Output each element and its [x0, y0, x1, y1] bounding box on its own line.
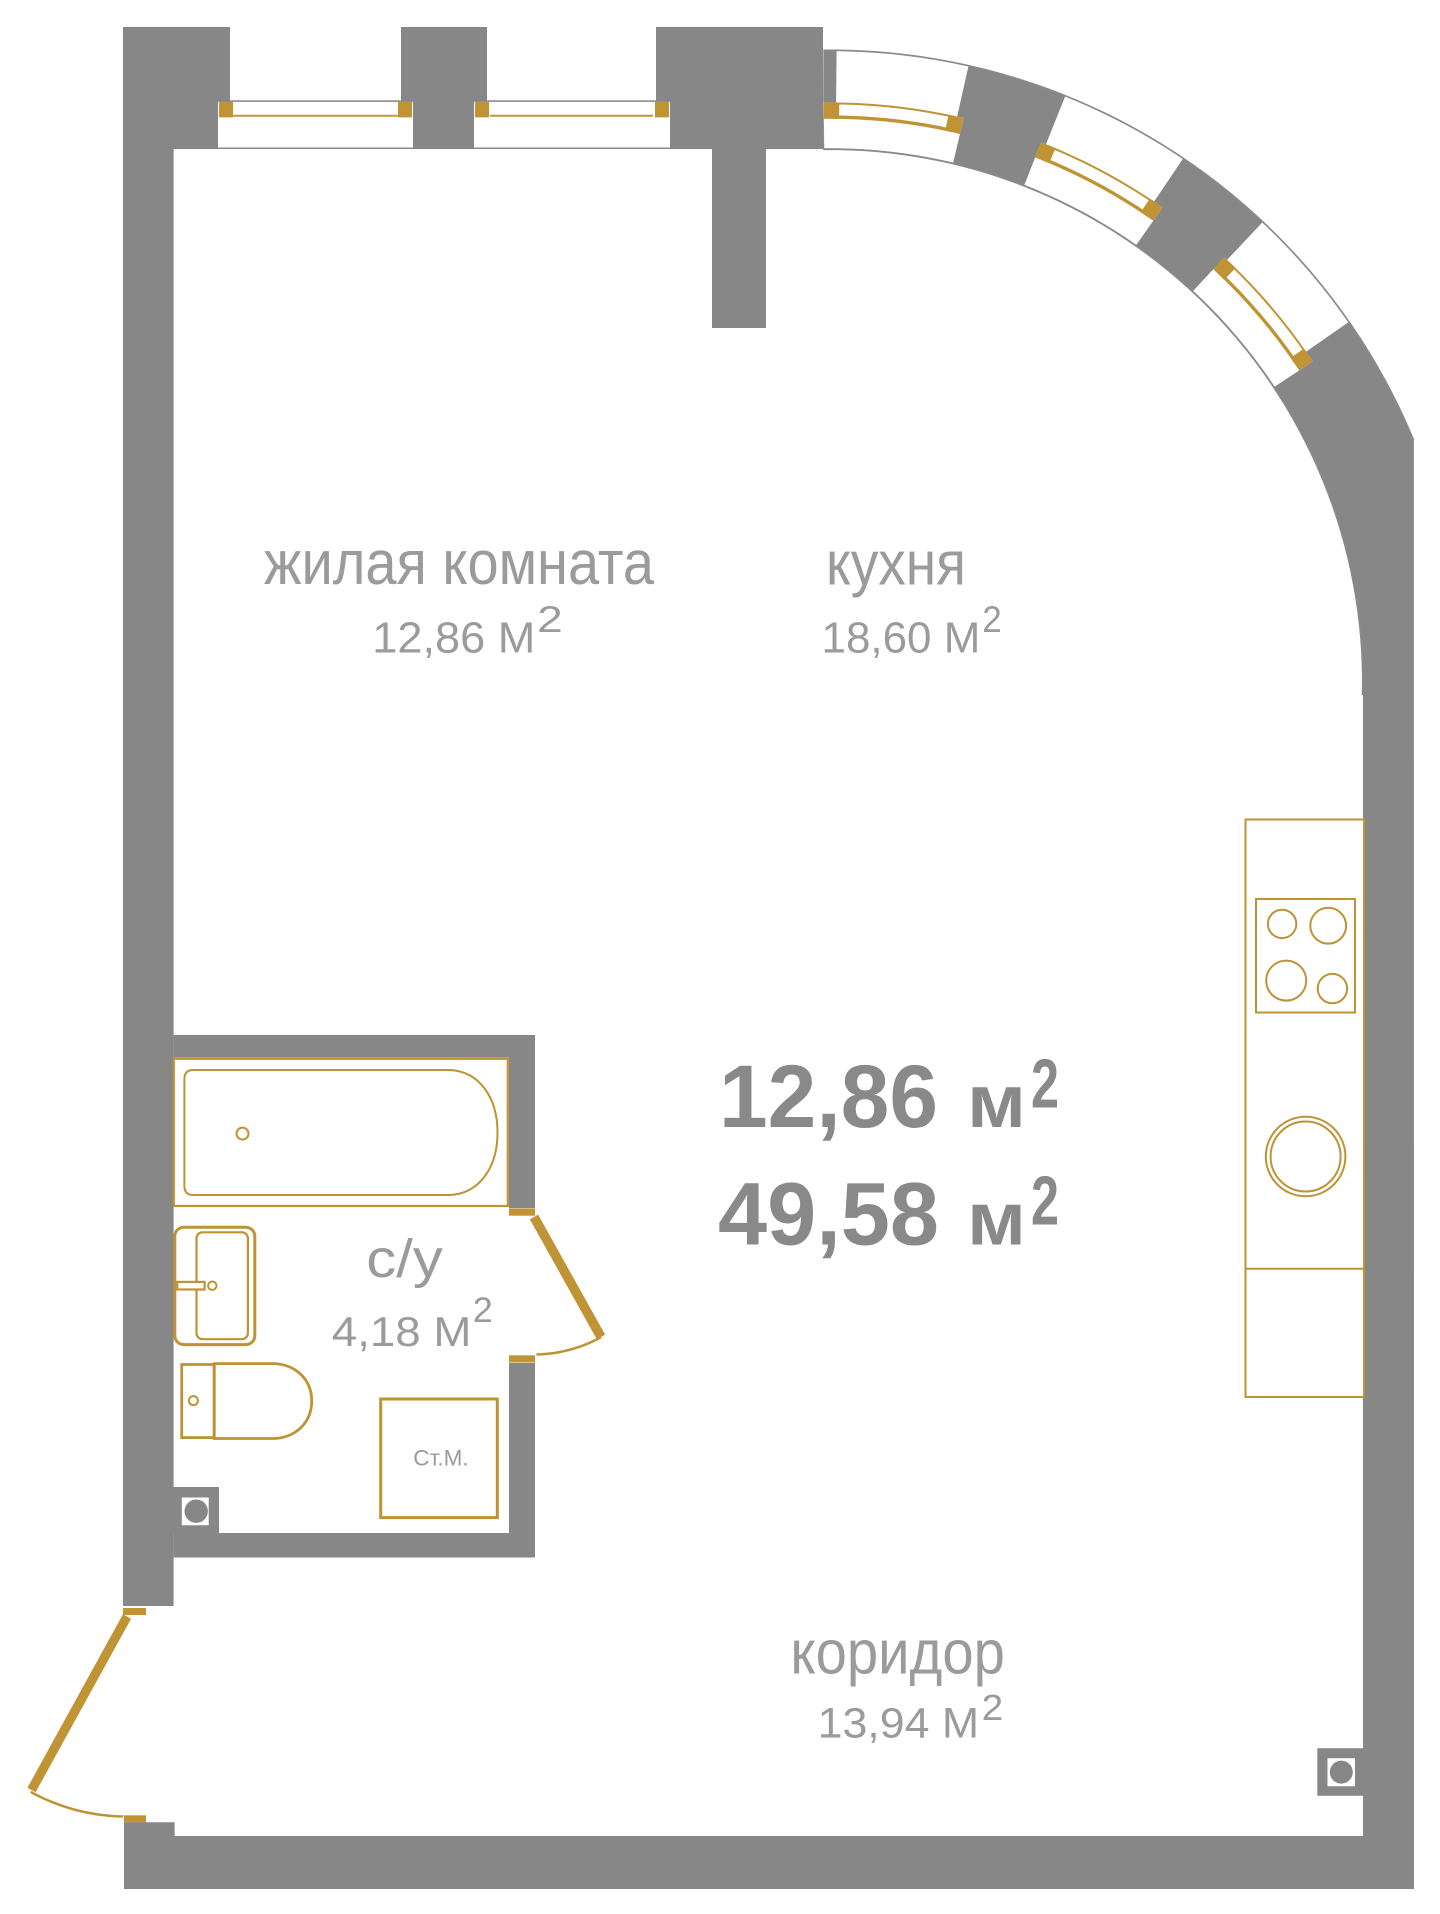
svg-text:2: 2 — [537, 599, 563, 640]
svg-text:2: 2 — [1031, 1044, 1059, 1122]
svg-text:кухня: кухня — [826, 529, 966, 598]
svg-text:2: 2 — [982, 1687, 1004, 1728]
svg-text:2: 2 — [1031, 1162, 1059, 1240]
svg-text:Ст.М.: Ст.М. — [413, 1446, 468, 1471]
svg-text:13,94 М: 13,94 М — [818, 1700, 980, 1748]
svg-text:с/у: с/у — [366, 1229, 443, 1289]
svg-text:49,58: 49,58 — [718, 1164, 939, 1264]
svg-text:м: м — [967, 1177, 1026, 1261]
svg-text:коридор: коридор — [790, 1618, 1005, 1687]
svg-text:12,86: 12,86 — [719, 1046, 938, 1146]
svg-text:18,60 М: 18,60 М — [822, 614, 981, 663]
svg-text:жилая комната: жилая комната — [264, 529, 654, 598]
svg-text:2: 2 — [982, 599, 1002, 640]
svg-text:12,86 М: 12,86 М — [372, 614, 535, 663]
svg-text:4,18 М: 4,18 М — [332, 1308, 472, 1355]
svg-text:м: м — [967, 1059, 1026, 1143]
svg-text:2: 2 — [473, 1291, 493, 1330]
